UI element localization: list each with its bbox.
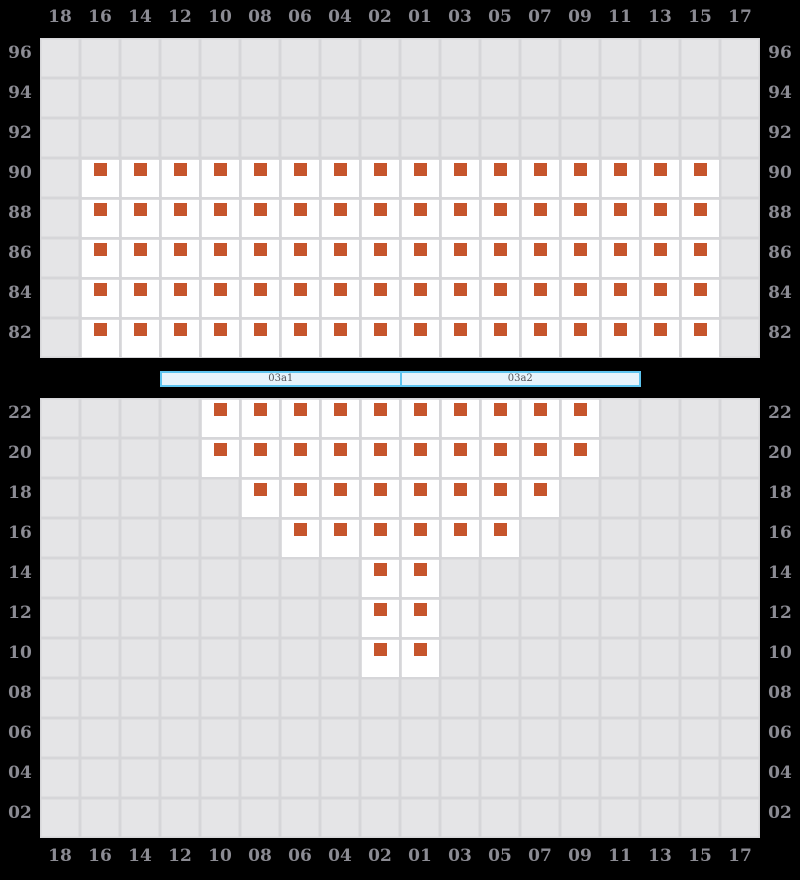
seat-marker-icon xyxy=(254,203,267,216)
column-label-08: 08 xyxy=(240,2,280,32)
seat-90-04[interactable] xyxy=(322,160,359,197)
seat-18-08[interactable] xyxy=(242,480,279,517)
seat-86-16[interactable] xyxy=(82,240,119,277)
seat-marker-icon xyxy=(294,523,307,536)
seat-88-06[interactable] xyxy=(282,200,319,237)
seat-86-02[interactable] xyxy=(362,240,399,277)
seat-20-01[interactable] xyxy=(402,440,439,477)
seat-20-04[interactable] xyxy=(322,440,359,477)
column-label-07: 07 xyxy=(520,2,560,32)
seat-86-08[interactable] xyxy=(242,240,279,277)
seat-marker-icon xyxy=(574,163,587,176)
row-label-86: 86 xyxy=(760,238,800,268)
section-bar: 03a1 03a2 xyxy=(160,371,641,387)
seat-marker-icon xyxy=(334,403,347,416)
seat-14-01[interactable] xyxy=(402,560,439,597)
column-label-09: 09 xyxy=(560,2,600,32)
seat-86-03[interactable] xyxy=(442,240,479,277)
row-label-22: 22 xyxy=(0,398,40,428)
seat-marker-icon xyxy=(414,443,427,456)
row-label-04: 04 xyxy=(760,758,800,788)
seat-20-02[interactable] xyxy=(362,440,399,477)
seat-marker-icon xyxy=(294,403,307,416)
seat-marker-icon xyxy=(94,323,107,336)
seat-16-05[interactable] xyxy=(482,520,519,557)
seat-22-06[interactable] xyxy=(282,400,319,437)
seat-16-04[interactable] xyxy=(322,520,359,557)
seat-16-03[interactable] xyxy=(442,520,479,557)
seat-marker-icon xyxy=(414,603,427,616)
row-label-18: 18 xyxy=(0,478,40,508)
seat-18-01[interactable] xyxy=(402,480,439,517)
seat-marker-icon xyxy=(94,243,107,256)
seat-12-02[interactable] xyxy=(362,600,399,637)
seat-82-06[interactable] xyxy=(282,320,319,357)
row-label-08: 08 xyxy=(0,678,40,708)
seat-marker-icon xyxy=(174,243,187,256)
seat-84-05[interactable] xyxy=(482,280,519,317)
seat-marker-icon xyxy=(534,443,547,456)
seat-16-02[interactable] xyxy=(362,520,399,557)
seat-88-01[interactable] xyxy=(402,200,439,237)
seat-marker-icon xyxy=(494,283,507,296)
seat-90-11[interactable] xyxy=(602,160,639,197)
seat-marker-icon xyxy=(454,163,467,176)
seat-marker-icon xyxy=(174,323,187,336)
seat-marker-icon xyxy=(134,243,147,256)
seat-marker-icon xyxy=(94,283,107,296)
seat-marker-icon xyxy=(254,403,267,416)
row-label-12: 12 xyxy=(760,598,800,628)
seat-marker-icon xyxy=(454,283,467,296)
seat-marker-icon xyxy=(654,163,667,176)
row-label-84: 84 xyxy=(0,278,40,308)
seat-84-13[interactable] xyxy=(642,280,679,317)
seat-86-15[interactable] xyxy=(682,240,719,277)
seat-84-03[interactable] xyxy=(442,280,479,317)
seat-marker-icon xyxy=(414,283,427,296)
seat-90-05[interactable] xyxy=(482,160,519,197)
seat-90-13[interactable] xyxy=(642,160,679,197)
row-label-92: 92 xyxy=(760,118,800,148)
seat-marker-icon xyxy=(254,243,267,256)
column-label-04: 04 xyxy=(320,841,360,871)
column-label-10: 10 xyxy=(200,2,240,32)
seat-marker-icon xyxy=(654,323,667,336)
seat-12-01[interactable] xyxy=(402,600,439,637)
seat-marker-icon xyxy=(574,203,587,216)
seat-82-02[interactable] xyxy=(362,320,399,357)
seat-marker-icon xyxy=(254,283,267,296)
seat-marker-icon xyxy=(214,243,227,256)
seat-marker-icon xyxy=(614,163,627,176)
seat-86-06[interactable] xyxy=(282,240,319,277)
seat-marker-icon xyxy=(414,483,427,496)
seat-marker-icon xyxy=(574,323,587,336)
seat-88-15[interactable] xyxy=(682,200,719,237)
seat-86-11[interactable] xyxy=(602,240,639,277)
seat-marker-icon xyxy=(374,563,387,576)
seat-marker-icon xyxy=(214,403,227,416)
seat-marker-icon xyxy=(454,403,467,416)
seat-84-06[interactable] xyxy=(282,280,319,317)
seat-marker-icon xyxy=(694,203,707,216)
seat-86-13[interactable] xyxy=(642,240,679,277)
seat-16-01[interactable] xyxy=(402,520,439,557)
column-label-09: 09 xyxy=(560,841,600,871)
seat-marker-icon xyxy=(694,163,707,176)
seat-82-03[interactable] xyxy=(442,320,479,357)
column-label-17: 17 xyxy=(720,2,760,32)
row-label-96: 96 xyxy=(0,38,40,68)
seat-20-08[interactable] xyxy=(242,440,279,477)
seat-marker-icon xyxy=(494,163,507,176)
seat-90-06[interactable] xyxy=(282,160,319,197)
seat-marker-icon xyxy=(294,283,307,296)
seat-marker-icon xyxy=(334,323,347,336)
seat-88-09[interactable] xyxy=(562,200,599,237)
seat-marker-icon xyxy=(374,283,387,296)
seat-marker-icon xyxy=(334,483,347,496)
seat-20-10[interactable] xyxy=(202,440,239,477)
section-label: 03a2 xyxy=(508,374,533,384)
seat-marker-icon xyxy=(374,203,387,216)
column-label-12: 12 xyxy=(160,2,200,32)
seat-84-11[interactable] xyxy=(602,280,639,317)
column-label-12: 12 xyxy=(160,841,200,871)
row-label-16: 16 xyxy=(0,518,40,548)
seat-marker-icon xyxy=(94,203,107,216)
seat-88-04[interactable] xyxy=(322,200,359,237)
section-03a2[interactable]: 03a2 xyxy=(402,371,642,387)
seat-marker-icon xyxy=(454,323,467,336)
row-label-20: 20 xyxy=(0,438,40,468)
seat-22-04[interactable] xyxy=(322,400,359,437)
seat-84-04[interactable] xyxy=(322,280,359,317)
seat-marker-icon xyxy=(94,163,107,176)
seat-marker-icon xyxy=(534,323,547,336)
seat-88-13[interactable] xyxy=(642,200,679,237)
seat-18-07[interactable] xyxy=(522,480,559,517)
seat-82-07[interactable] xyxy=(522,320,559,357)
seat-82-15[interactable] xyxy=(682,320,719,357)
seat-marker-icon xyxy=(334,243,347,256)
seat-86-01[interactable] xyxy=(402,240,439,277)
row-label-12: 12 xyxy=(0,598,40,628)
seat-marker-icon xyxy=(254,323,267,336)
row-label-02: 02 xyxy=(0,798,40,828)
seat-marker-icon xyxy=(374,243,387,256)
seat-22-05[interactable] xyxy=(482,400,519,437)
row-label-06: 06 xyxy=(760,718,800,748)
seat-88-14[interactable] xyxy=(122,200,159,237)
row-label-20: 20 xyxy=(760,438,800,468)
seat-84-16[interactable] xyxy=(82,280,119,317)
seat-marker-icon xyxy=(334,443,347,456)
seat-84-07[interactable] xyxy=(522,280,559,317)
row-label-82: 82 xyxy=(0,318,40,348)
seat-88-03[interactable] xyxy=(442,200,479,237)
seat-90-09[interactable] xyxy=(562,160,599,197)
row-label-88: 88 xyxy=(760,198,800,228)
seat-86-14[interactable] xyxy=(122,240,159,277)
seat-82-09[interactable] xyxy=(562,320,599,357)
seat-marker-icon xyxy=(334,163,347,176)
column-label-03: 03 xyxy=(440,841,480,871)
seat-marker-icon xyxy=(494,483,507,496)
seat-marker-icon xyxy=(414,523,427,536)
seat-88-10[interactable] xyxy=(202,200,239,237)
seat-marker-icon xyxy=(294,323,307,336)
seat-marker-icon xyxy=(414,563,427,576)
section-label: 03a1 xyxy=(268,374,293,384)
seat-marker-icon xyxy=(414,403,427,416)
seat-84-02[interactable] xyxy=(362,280,399,317)
column-label-15: 15 xyxy=(680,2,720,32)
row-label-88: 88 xyxy=(0,198,40,228)
seat-90-02[interactable] xyxy=(362,160,399,197)
seat-20-07[interactable] xyxy=(522,440,559,477)
seat-marker-icon xyxy=(414,243,427,256)
seat-marker-icon xyxy=(694,243,707,256)
column-label-11: 11 xyxy=(600,2,640,32)
seat-marker-icon xyxy=(254,163,267,176)
seat-marker-icon xyxy=(574,283,587,296)
seat-90-16[interactable] xyxy=(82,160,119,197)
row-label-02: 02 xyxy=(760,798,800,828)
seat-22-02[interactable] xyxy=(362,400,399,437)
seat-marker-icon xyxy=(134,323,147,336)
seat-marker-icon xyxy=(214,163,227,176)
seat-84-09[interactable] xyxy=(562,280,599,317)
row-label-08: 08 xyxy=(760,678,800,708)
seat-20-09[interactable] xyxy=(562,440,599,477)
seat-22-01[interactable] xyxy=(402,400,439,437)
column-label-13: 13 xyxy=(640,2,680,32)
seat-84-01[interactable] xyxy=(402,280,439,317)
seat-marker-icon xyxy=(254,443,267,456)
column-label-10: 10 xyxy=(200,841,240,871)
column-label-01: 01 xyxy=(400,2,440,32)
column-label-08: 08 xyxy=(240,841,280,871)
seat-marker-icon xyxy=(214,323,227,336)
seat-90-08[interactable] xyxy=(242,160,279,197)
seat-marker-icon xyxy=(294,443,307,456)
seat-marker-icon xyxy=(534,403,547,416)
seat-82-12[interactable] xyxy=(162,320,199,357)
seat-marker-icon xyxy=(414,163,427,176)
seat-marker-icon xyxy=(134,163,147,176)
seat-84-12[interactable] xyxy=(162,280,199,317)
seat-marker-icon xyxy=(174,283,187,296)
column-label-07: 07 xyxy=(520,841,560,871)
row-label-16: 16 xyxy=(760,518,800,548)
seat-20-03[interactable] xyxy=(442,440,479,477)
seat-marker-icon xyxy=(214,443,227,456)
seat-18-05[interactable] xyxy=(482,480,519,517)
seat-82-11[interactable] xyxy=(602,320,639,357)
seat-marker-icon xyxy=(254,483,267,496)
seat-88-07[interactable] xyxy=(522,200,559,237)
seat-marker-icon xyxy=(134,203,147,216)
seat-82-10[interactable] xyxy=(202,320,239,357)
seat-16-06[interactable] xyxy=(282,520,319,557)
seat-marker-icon xyxy=(174,203,187,216)
section-03a1[interactable]: 03a1 xyxy=(160,371,402,387)
seat-marker-icon xyxy=(494,243,507,256)
seat-marker-icon xyxy=(334,523,347,536)
seat-marker-icon xyxy=(534,243,547,256)
seat-82-16[interactable] xyxy=(82,320,119,357)
column-label-16: 16 xyxy=(80,841,120,871)
seat-90-01[interactable] xyxy=(402,160,439,197)
seat-22-08[interactable] xyxy=(242,400,279,437)
seat-marker-icon xyxy=(614,323,627,336)
seat-18-03[interactable] xyxy=(442,480,479,517)
column-label-06: 06 xyxy=(280,841,320,871)
seat-86-12[interactable] xyxy=(162,240,199,277)
seat-marker-icon xyxy=(414,643,427,656)
seat-marker-icon xyxy=(534,483,547,496)
row-label-18: 18 xyxy=(760,478,800,508)
seat-20-06[interactable] xyxy=(282,440,319,477)
seat-84-14[interactable] xyxy=(122,280,159,317)
upper-seat-grid xyxy=(40,38,760,358)
lower-seat-grid xyxy=(40,398,760,838)
seat-marker-icon xyxy=(414,203,427,216)
seat-82-13[interactable] xyxy=(642,320,679,357)
seat-marker-icon xyxy=(374,443,387,456)
row-label-96: 96 xyxy=(760,38,800,68)
seat-marker-icon xyxy=(614,243,627,256)
seat-88-12[interactable] xyxy=(162,200,199,237)
seat-86-10[interactable] xyxy=(202,240,239,277)
top-column-axis: 181614121008060402010305070911131517 xyxy=(40,2,760,32)
seat-marker-icon xyxy=(574,443,587,456)
column-label-17: 17 xyxy=(720,841,760,871)
seat-marker-icon xyxy=(534,283,547,296)
seat-marker-icon xyxy=(494,323,507,336)
seat-90-10[interactable] xyxy=(202,160,239,197)
seat-marker-icon xyxy=(374,323,387,336)
column-label-16: 16 xyxy=(80,2,120,32)
seat-82-14[interactable] xyxy=(122,320,159,357)
column-label-15: 15 xyxy=(680,841,720,871)
seat-90-15[interactable] xyxy=(682,160,719,197)
seat-marker-icon xyxy=(294,483,307,496)
seat-marker-icon xyxy=(134,283,147,296)
seat-marker-icon xyxy=(494,403,507,416)
row-label-92: 92 xyxy=(0,118,40,148)
seat-marker-icon xyxy=(574,403,587,416)
seat-86-05[interactable] xyxy=(482,240,519,277)
seat-90-14[interactable] xyxy=(122,160,159,197)
left-row-labels: 96949290888684822220181614121008060402 xyxy=(0,0,40,880)
seat-marker-icon xyxy=(574,243,587,256)
seat-marker-icon xyxy=(494,203,507,216)
seat-marker-icon xyxy=(374,483,387,496)
seat-marker-icon xyxy=(454,243,467,256)
seat-20-05[interactable] xyxy=(482,440,519,477)
seat-10-02[interactable] xyxy=(362,640,399,677)
seat-marker-icon xyxy=(374,403,387,416)
seat-map-page: { "colors":{ "page_bg":"#000000", "grid_… xyxy=(0,0,800,880)
seat-marker-icon xyxy=(214,203,227,216)
seat-marker-icon xyxy=(654,203,667,216)
column-label-14: 14 xyxy=(120,2,160,32)
seat-90-03[interactable] xyxy=(442,160,479,197)
row-label-90: 90 xyxy=(760,158,800,188)
seat-22-03[interactable] xyxy=(442,400,479,437)
seat-86-04[interactable] xyxy=(322,240,359,277)
seat-88-02[interactable] xyxy=(362,200,399,237)
seat-88-11[interactable] xyxy=(602,200,639,237)
seat-82-08[interactable] xyxy=(242,320,279,357)
seat-82-01[interactable] xyxy=(402,320,439,357)
seat-marker-icon xyxy=(494,443,507,456)
seat-marker-icon xyxy=(294,163,307,176)
seat-marker-icon xyxy=(534,163,547,176)
seat-82-04[interactable] xyxy=(322,320,359,357)
seat-18-06[interactable] xyxy=(282,480,319,517)
seat-18-02[interactable] xyxy=(362,480,399,517)
seat-marker-icon xyxy=(414,323,427,336)
seat-22-10[interactable] xyxy=(202,400,239,437)
seat-marker-icon xyxy=(534,203,547,216)
seat-84-08[interactable] xyxy=(242,280,279,317)
column-label-05: 05 xyxy=(480,2,520,32)
seat-86-09[interactable] xyxy=(562,240,599,277)
seat-10-01[interactable] xyxy=(402,640,439,677)
seat-marker-icon xyxy=(454,483,467,496)
row-label-04: 04 xyxy=(0,758,40,788)
row-label-10: 10 xyxy=(0,638,40,668)
seat-22-09[interactable] xyxy=(562,400,599,437)
seat-marker-icon xyxy=(694,283,707,296)
seat-82-05[interactable] xyxy=(482,320,519,357)
seat-marker-icon xyxy=(334,203,347,216)
seat-88-05[interactable] xyxy=(482,200,519,237)
column-label-18: 18 xyxy=(40,841,80,871)
row-label-14: 14 xyxy=(760,558,800,588)
seat-14-02[interactable] xyxy=(362,560,399,597)
column-label-02: 02 xyxy=(360,2,400,32)
seat-marker-icon xyxy=(614,203,627,216)
seat-marker-icon xyxy=(174,163,187,176)
row-label-94: 94 xyxy=(0,78,40,108)
seat-18-04[interactable] xyxy=(322,480,359,517)
seat-marker-icon xyxy=(454,523,467,536)
bottom-column-axis: 181614121008060402010305070911131517 xyxy=(40,841,760,871)
seat-22-07[interactable] xyxy=(522,400,559,437)
seat-84-10[interactable] xyxy=(202,280,239,317)
seat-86-07[interactable] xyxy=(522,240,559,277)
seat-84-15[interactable] xyxy=(682,280,719,317)
seat-90-07[interactable] xyxy=(522,160,559,197)
column-label-14: 14 xyxy=(120,841,160,871)
row-label-86: 86 xyxy=(0,238,40,268)
seat-marker-icon xyxy=(374,643,387,656)
column-label-18: 18 xyxy=(40,2,80,32)
seat-90-12[interactable] xyxy=(162,160,199,197)
seat-marker-icon xyxy=(494,523,507,536)
seat-88-16[interactable] xyxy=(82,200,119,237)
seat-marker-icon xyxy=(454,203,467,216)
seat-88-08[interactable] xyxy=(242,200,279,237)
seat-marker-icon xyxy=(374,603,387,616)
seat-marker-icon xyxy=(614,283,627,296)
row-label-22: 22 xyxy=(760,398,800,428)
